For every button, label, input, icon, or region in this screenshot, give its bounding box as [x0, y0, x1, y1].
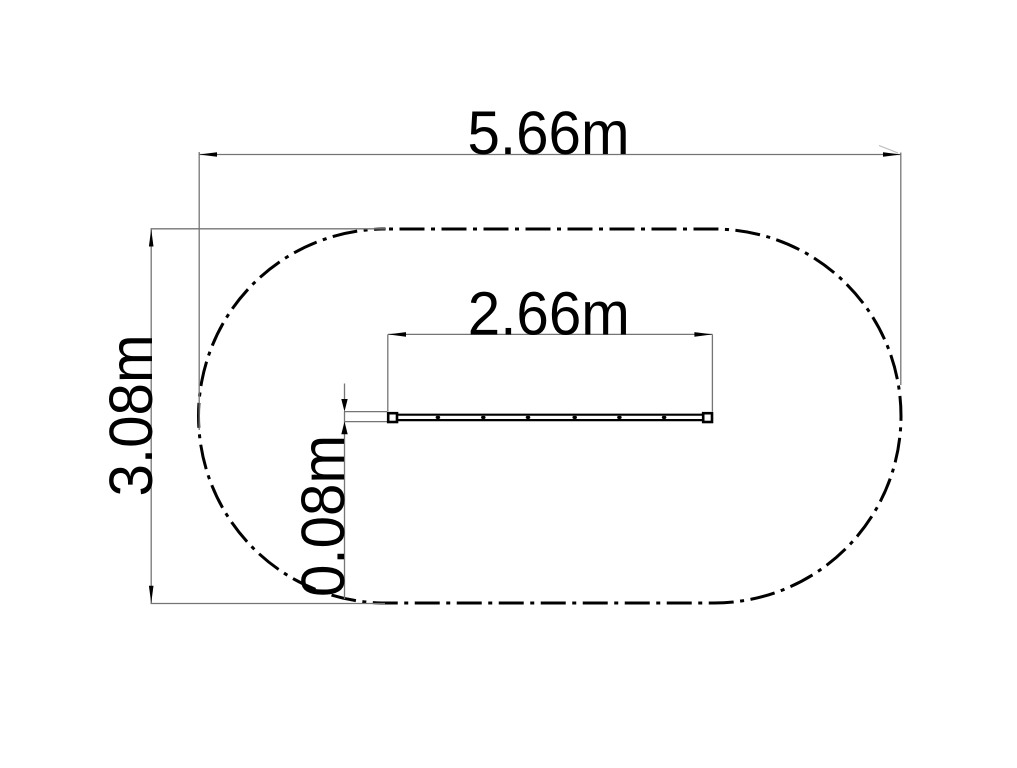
svg-text:3.08m: 3.08m — [97, 335, 166, 497]
svg-text:0.08m: 0.08m — [289, 435, 358, 597]
svg-text:2.66m: 2.66m — [468, 280, 630, 349]
svg-text:5.66m: 5.66m — [468, 99, 630, 168]
